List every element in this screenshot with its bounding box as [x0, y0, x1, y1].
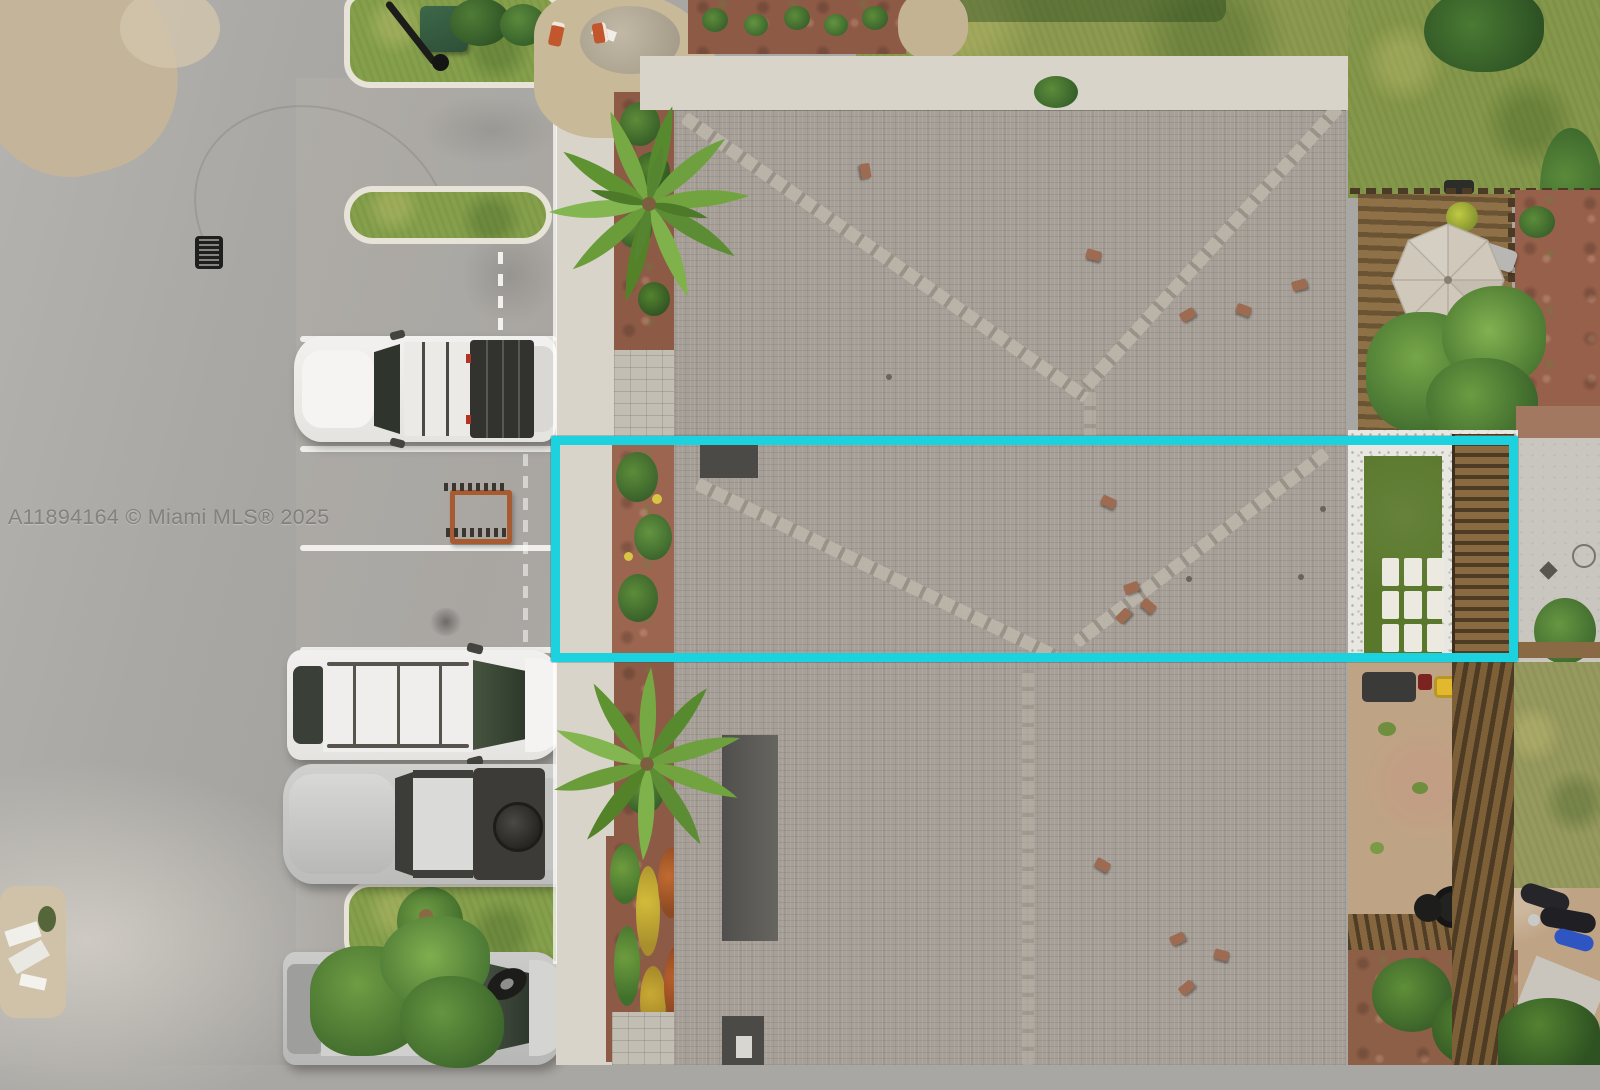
spare-tire-bulge: [493, 802, 543, 852]
rear-bumper: [534, 346, 554, 432]
shrub: [1519, 206, 1555, 238]
tire: [1414, 894, 1442, 922]
car-roof: [404, 342, 470, 436]
grill-table: [1362, 672, 1416, 702]
car-hood: [302, 350, 374, 428]
car-windshield: [395, 772, 413, 876]
chrome-part: [1528, 914, 1540, 926]
garden-hose: [1572, 544, 1596, 568]
parking-stripe: [300, 446, 556, 452]
neighbor-patio: [1516, 406, 1600, 670]
taillight: [466, 415, 471, 424]
vehicle-white-jeep: [294, 334, 556, 444]
aerial-photo: { "watermark": { "text": "A11894164 © Mi…: [0, 0, 1600, 1065]
shrub: [824, 14, 848, 36]
side-window: [413, 870, 473, 878]
rebar-row: [444, 483, 508, 491]
grass-median: [344, 186, 552, 244]
debris-board: [19, 973, 47, 990]
vehicle-white-suv: [287, 648, 563, 762]
shrub: [702, 8, 728, 32]
side-window: [413, 770, 473, 778]
toy-red: [1418, 674, 1432, 690]
entry-recess-bottom: [722, 1016, 764, 1065]
patio-mulch-edge: [1516, 406, 1600, 438]
corner-tree-canopy: [1498, 998, 1600, 1065]
roof-ridge-lower: [1022, 670, 1034, 1065]
weed: [1412, 782, 1428, 794]
motorcycle-cluster: [1518, 880, 1598, 966]
roof-ridge-short: [1084, 390, 1096, 442]
mls-watermark: A11894164 © Miami MLS® 2025: [8, 505, 329, 530]
traffic-cone: [548, 21, 566, 47]
roof-crossbar: [397, 662, 400, 748]
parking-stripe: [300, 545, 556, 551]
oil-stain: [430, 608, 462, 636]
car-windshield: [374, 344, 400, 434]
plant-row-green: [614, 926, 640, 1006]
drain-grate: [199, 239, 219, 266]
taillight: [466, 354, 471, 363]
roof-seam: [422, 342, 425, 436]
roof-crossbar: [353, 662, 356, 748]
weed: [1378, 722, 1396, 736]
rear-window: [293, 666, 323, 744]
backyard-lawn-top: [1348, 0, 1600, 198]
tree-canopy: [1424, 0, 1544, 72]
doormat: [736, 1036, 752, 1058]
roof-speck: [886, 374, 892, 380]
car-hood: [289, 774, 395, 874]
property-highlight-rectangle: [551, 436, 1518, 662]
front-mulch-bed: [688, 0, 906, 54]
panel-seam: [502, 340, 504, 438]
neighbor-grass: [1514, 662, 1600, 888]
sidewalk-shrub: [1034, 76, 1078, 108]
grass-island-top: [344, 0, 560, 88]
weed: [1370, 842, 1384, 854]
shrub: [862, 6, 888, 30]
tree-canopy-over-suv: [310, 916, 514, 1068]
car-windshield: [473, 660, 525, 750]
roof-crossbar: [439, 662, 442, 748]
panel-seam: [486, 340, 488, 438]
plant-row-yellow: [636, 866, 660, 956]
vehicle-silver-jeep: [283, 762, 563, 886]
wood-beam: [1516, 642, 1600, 658]
canopy-lobe: [400, 976, 504, 1068]
rebar-row: [446, 528, 510, 537]
shrub: [744, 14, 768, 36]
palm-tree-top: [543, 98, 755, 310]
palm-tree-mid: [545, 662, 749, 866]
wood-fence-panel-long: [1452, 662, 1514, 1065]
backyard-bottom: [1348, 662, 1600, 1065]
shrub: [784, 6, 810, 30]
panel-seam: [518, 340, 520, 438]
light-pole-base: [432, 54, 449, 71]
weed-clump: [38, 906, 56, 932]
patio-drain: [1539, 561, 1557, 579]
roof-seam: [446, 342, 449, 436]
debris-pit: [0, 886, 66, 1018]
car-cab-roof: [413, 770, 473, 878]
parking-stripe-vertical: [498, 248, 503, 330]
parking-stripe-vertical: [523, 452, 528, 642]
dirt-patch: [898, 0, 968, 60]
storm-drain: [195, 236, 223, 269]
